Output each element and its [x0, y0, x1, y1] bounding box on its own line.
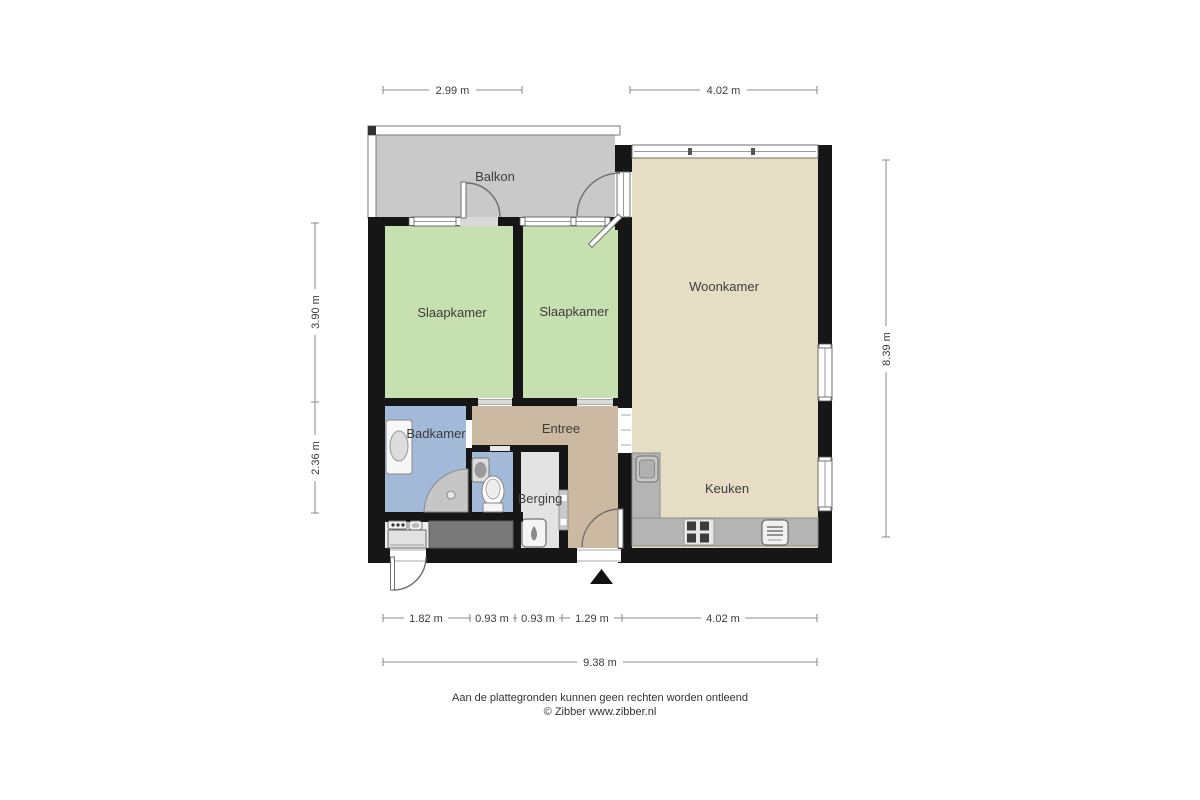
sink-basin — [475, 462, 487, 478]
floorplan-canvas: Balkon Slaapkamer Slaapkamer Woonkamer B… — [0, 0, 1200, 800]
door-leaf-balcony-left — [461, 182, 466, 218]
label-badkamer: Badkamer — [406, 426, 466, 441]
wall-balcony-woonkamer — [615, 145, 632, 172]
window-tick — [571, 218, 576, 226]
shower-drain — [447, 491, 455, 499]
label-balkon: Balkon — [475, 169, 515, 184]
burner — [700, 534, 709, 543]
doorway-badkamer — [466, 420, 472, 448]
label-slaapkamer-left: Slaapkamer — [417, 305, 487, 320]
burner — [687, 534, 696, 543]
wall-right — [818, 510, 832, 563]
wall-bottom — [368, 548, 390, 563]
balcony-railing-top — [368, 126, 620, 135]
utility-closet-fixtures — [388, 521, 513, 548]
door-jamb-tick — [561, 519, 567, 525]
balcony-railing-left — [368, 135, 376, 218]
balcony-railing-corner — [368, 126, 376, 135]
entrance-marker — [590, 569, 613, 584]
window-tick — [819, 457, 831, 461]
utility-sink-basin — [412, 523, 420, 528]
wall-bedrooms-bottom — [512, 398, 577, 406]
wall-bedrooms-bottom — [613, 398, 632, 406]
label-entree: Entree — [542, 421, 580, 436]
kitchen-sink-basin — [640, 460, 655, 478]
dim-bottom-4: 1.29 m — [575, 613, 609, 625]
burner — [700, 522, 709, 531]
wall-center-vertical — [618, 226, 632, 408]
door-leaf-entrance — [618, 509, 623, 548]
wall-balcony-band — [498, 217, 523, 226]
wall-bottom — [426, 548, 577, 563]
window-tick — [520, 218, 525, 226]
wall-left — [368, 218, 385, 563]
label-slaapkamer-right: Slaapkamer — [539, 304, 609, 319]
wall-right — [818, 145, 832, 345]
window-tick — [409, 218, 414, 226]
doorway-closet-exterior — [390, 549, 426, 562]
footer-disclaimer: Aan de plattegronden kunnen geen rechten… — [452, 692, 748, 704]
door-leaf-closet — [391, 557, 395, 590]
footer: Aan de plattegronden kunnen geen rechten… — [452, 692, 748, 718]
wall-bottom — [621, 548, 832, 563]
window-tick — [688, 148, 692, 155]
knob — [396, 523, 399, 526]
dim-bottom-1: 1.82 m — [409, 613, 443, 625]
toilet-tank — [483, 503, 503, 512]
dim-bottom-5: 4.02 m — [706, 613, 740, 625]
wall-bedroom-divider — [513, 226, 523, 398]
label-woonkamer: Woonkamer — [689, 279, 760, 294]
floorplan-page: Balkon Slaapkamer Slaapkamer Woonkamer B… — [0, 0, 1200, 800]
window-tick — [751, 148, 755, 155]
doorway-main-entrance — [577, 549, 621, 562]
dim-top-1: 2.99 m — [436, 85, 470, 97]
toilet-bowl — [486, 479, 500, 499]
dim-left-2: 2.36 m — [310, 441, 322, 475]
dim-top-2: 4.02 m — [707, 85, 741, 97]
doorway-wc — [490, 446, 510, 451]
footer-copyright: © Zibber www.zibber.nl — [544, 706, 657, 718]
window-tick — [819, 507, 831, 511]
dim-right-1: 8.39 m — [881, 332, 893, 366]
knob — [401, 523, 404, 526]
dim-bottom-total: 9.38 m — [583, 657, 617, 669]
label-keuken: Keuken — [705, 481, 749, 496]
berging-fixtures — [522, 519, 546, 547]
wall-right — [818, 400, 832, 458]
bathtub-basin — [390, 431, 408, 461]
burner — [687, 522, 696, 531]
oven-icon — [762, 520, 788, 545]
knob — [391, 523, 394, 526]
dim-left-1: 3.90 m — [310, 295, 322, 329]
kitchen-counter-horizontal — [632, 518, 818, 546]
window-tick — [819, 344, 831, 348]
label-berging: Berging — [518, 491, 563, 506]
worktop — [429, 521, 513, 548]
dim-bottom-3: 0.93 m — [521, 613, 555, 625]
wall-balcony-band — [368, 217, 412, 226]
dim-bottom-2: 0.93 m — [475, 613, 509, 625]
window-tick — [819, 397, 831, 401]
wall-bedrooms-bottom — [368, 398, 478, 406]
